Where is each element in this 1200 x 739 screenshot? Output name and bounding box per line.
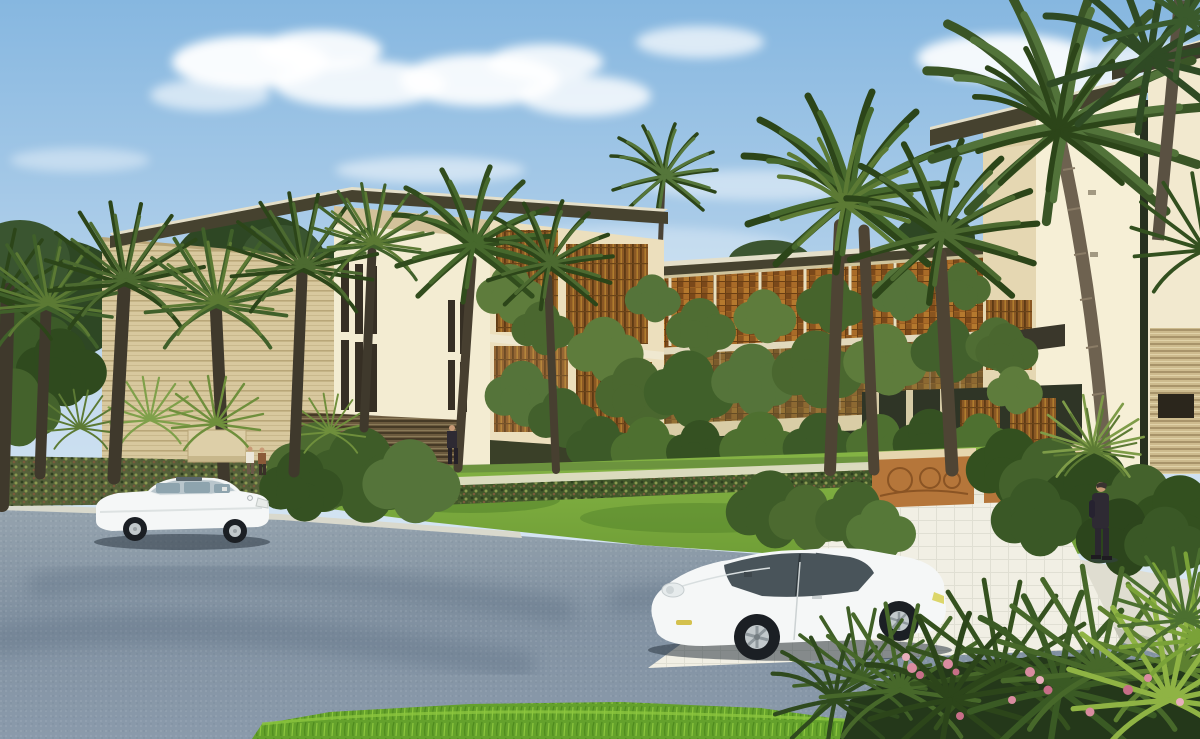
- person1-head: [248, 447, 253, 452]
- tower-window-mark2: [1090, 252, 1098, 257]
- person1-torso: [246, 452, 254, 463]
- coupe-mirror: [744, 572, 752, 577]
- architectural-rendering: [0, 0, 1200, 739]
- coupe-door-handle: [812, 596, 822, 599]
- person2-torso: [258, 453, 266, 464]
- tower-window-mark: [1088, 190, 1096, 195]
- scene-canvas: [0, 0, 1200, 739]
- coupe-foglight: [676, 620, 692, 625]
- person2-head: [260, 448, 265, 453]
- sedan-sunroof: [176, 477, 202, 481]
- man-arm: [1089, 500, 1095, 518]
- coupe-front-wheel: [734, 614, 780, 660]
- sedan-mirror: [222, 487, 227, 491]
- slat-wall-slot-window: [1158, 394, 1194, 418]
